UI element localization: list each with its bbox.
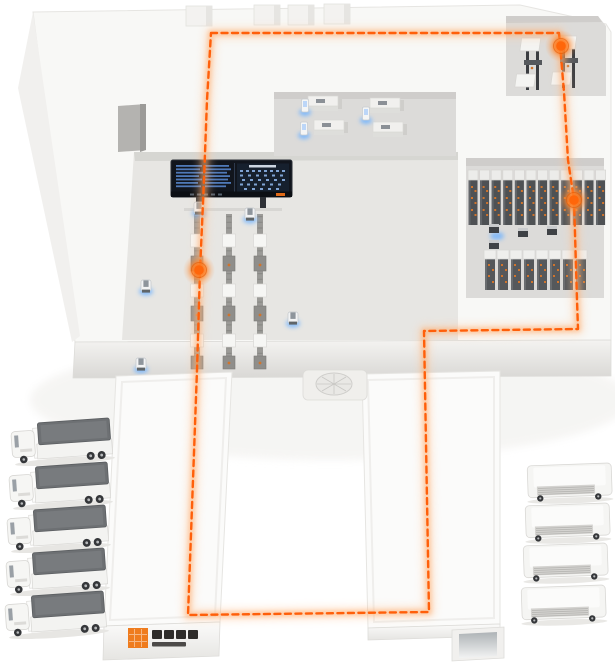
- pallet-cube: [489, 224, 499, 233]
- board-divider: [234, 163, 235, 192]
- office-desk: [314, 120, 348, 135]
- conveyor-line: [223, 214, 236, 369]
- agv-robot: [134, 358, 148, 374]
- semi-truck: [10, 418, 115, 469]
- office-desk: [373, 122, 407, 137]
- office-desk: [370, 98, 404, 113]
- route-marker: [183, 254, 215, 286]
- pallet-cube: [547, 226, 557, 235]
- board-panel-title: [249, 165, 276, 168]
- glow-blue: [490, 232, 504, 240]
- left-truck-fleet: [4, 418, 115, 642]
- office-workstation-room: [274, 92, 456, 156]
- storage-rack-room: [466, 158, 606, 298]
- roof-block: [186, 6, 212, 26]
- hall-front-face: [103, 622, 220, 660]
- agv-robot: [139, 280, 153, 296]
- semi-truck: [5, 548, 110, 599]
- board-bottom-strip: [171, 192, 292, 198]
- hall-roof: [104, 372, 232, 626]
- semi-truck: [8, 462, 113, 513]
- wall-notch-side: [140, 104, 146, 152]
- board-right-panel: [237, 164, 289, 192]
- box-van: [526, 463, 613, 505]
- vent-platform: [303, 370, 367, 400]
- box-van: [520, 585, 607, 627]
- logo-mark: [128, 628, 148, 648]
- agv-robot: [243, 208, 257, 224]
- pallet-cube: [518, 228, 528, 237]
- conveyor-line: [254, 214, 267, 369]
- box-van: [522, 543, 609, 585]
- board-orange-tick: [276, 193, 285, 196]
- semi-truck: [6, 505, 111, 556]
- right-van-fleet: [520, 463, 613, 627]
- roof-block: [288, 5, 314, 25]
- fan-blades: [317, 374, 351, 394]
- roof-block: [324, 4, 350, 24]
- board-leg: [260, 196, 266, 209]
- office-desk: [308, 96, 342, 111]
- route-marker: [558, 184, 590, 216]
- main-building: [18, 4, 611, 378]
- roof-block: [254, 5, 280, 25]
- dock-ramp: [452, 627, 504, 661]
- agv-robot: [286, 312, 300, 328]
- route-marker: [545, 30, 577, 62]
- semi-truck: [4, 591, 109, 642]
- pallet-cube: [489, 240, 499, 249]
- scene-root: [0, 0, 615, 662]
- box-van: [524, 503, 611, 545]
- warehouse-isometric-illustration: [0, 0, 615, 662]
